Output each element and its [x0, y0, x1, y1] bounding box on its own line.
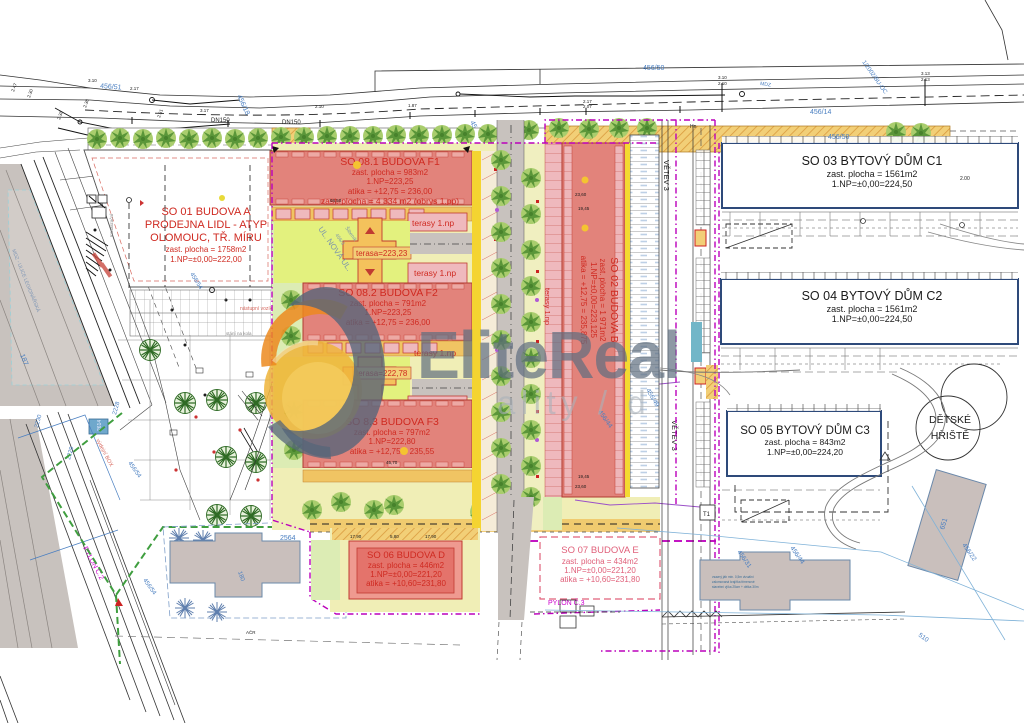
svg-text:stavební vjíka 25cm + délka 30: stavební vjíka 25cm + délka 30m	[712, 585, 759, 589]
svg-text:zast. plocha = 434m2: zast. plocha = 434m2	[562, 557, 639, 566]
svg-text:1.NP=±0,00=222,00: 1.NP=±0,00=222,00	[170, 255, 242, 264]
svg-text:SO 07 BUDOVA E: SO 07 BUDOVA E	[561, 545, 638, 556]
svg-text:19,45: 19,45	[578, 474, 590, 479]
svg-text:2.07: 2.07	[583, 104, 592, 109]
svg-text:OLOMOUC, TŘ. MÍRU: OLOMOUC, TŘ. MÍRU	[150, 231, 262, 244]
svg-text:DN150: DN150	[211, 118, 230, 124]
svg-text:2.10: 2.10	[315, 104, 324, 109]
svg-text:atika = +12,75 = 235,55: atika = +12,75 = 235,55	[350, 447, 435, 456]
svg-text:SO 03 BYTOVÝ DŮM C1: SO 03 BYTOVÝ DŮM C1	[802, 153, 943, 168]
svg-text:DN150: DN150	[282, 120, 301, 126]
svg-text:AČR: AČR	[246, 629, 256, 635]
svg-text:PYLON Č.3: PYLON Č.3	[548, 598, 585, 607]
svg-text:19,45: 19,45	[578, 206, 590, 211]
svg-text:2.13: 2.13	[921, 77, 930, 82]
svg-text:vsazný jáb min. 0,5m vizuální: vsazný jáb min. 0,5m vizuální	[712, 575, 754, 579]
svg-text:zast. plocha = 983m2: zast. plocha = 983m2	[352, 168, 429, 177]
svg-text:456/51: 456/51	[100, 83, 122, 91]
svg-text:1.NP=±0,00=224,50: 1.NP=±0,00=224,50	[832, 314, 913, 324]
svg-text:zast. plocha = 1561m2: zast. plocha = 1561m2	[827, 304, 918, 314]
svg-text:3.10: 3.10	[718, 75, 727, 80]
svg-text:atika = +10,60=231,80: atika = +10,60=231,80	[560, 575, 640, 584]
svg-text:VĚTEV 3: VĚTEV 3	[662, 160, 671, 191]
svg-text:zast. plocha = 843m2: zast. plocha = 843m2	[764, 437, 845, 447]
svg-text:terasy 1.np: terasy 1.np	[414, 268, 456, 278]
svg-text:1.87: 1.87	[408, 103, 417, 108]
svg-text:5,80: 5,80	[390, 534, 399, 539]
svg-text:PRODEJNA LIDL - ATYP: PRODEJNA LIDL - ATYP	[145, 219, 267, 231]
svg-text:SO 01 BUDOVA A: SO 01 BUDOVA A	[161, 206, 251, 218]
svg-text:VĚTEV 3: VĚTEV 3	[670, 420, 679, 451]
svg-text:ality / d: ality / d	[497, 384, 651, 421]
svg-text:23,60: 23,60	[575, 192, 587, 197]
svg-text:zast. plocha = 1561m2: zast. plocha = 1561m2	[827, 169, 918, 179]
svg-text:atika = +12,75 = 236,00: atika = +12,75 = 236,00	[348, 187, 433, 196]
svg-text:SO 05 BYTOVÝ DŮM C3: SO 05 BYTOVÝ DŮM C3	[740, 424, 870, 437]
svg-text:1.NP=±0,00=221,20: 1.NP=±0,00=221,20	[564, 566, 636, 575]
svg-text:1.NP=±0,00=224,20: 1.NP=±0,00=224,20	[767, 447, 843, 457]
svg-text:T1: T1	[703, 512, 711, 518]
svg-text:2.10: 2.10	[718, 81, 727, 86]
svg-text:23,60: 23,60	[575, 484, 587, 489]
svg-text:45,70: 45,70	[386, 460, 398, 465]
svg-text:3.13: 3.13	[921, 71, 930, 76]
svg-text:EliteReal: EliteReal	[417, 318, 680, 392]
svg-text:zast. plocha = 1758m2: zast. plocha = 1758m2	[166, 245, 247, 254]
svg-text:zast. plocha = 4 334 m2 (obrys: zast. plocha = 4 334 m2 (obrys 1.pp)	[321, 196, 459, 206]
svg-text:456/50: 456/50	[643, 65, 665, 72]
svg-text:zalomovaná krajířka třmenové: zalomovaná krajířka třmenové	[712, 580, 755, 584]
svg-text:1.NP=223,25: 1.NP=223,25	[365, 308, 412, 317]
svg-text:2.17: 2.17	[130, 86, 139, 91]
svg-text:17,90: 17,90	[350, 534, 362, 539]
svg-text:56,50: 56,50	[330, 198, 342, 203]
svg-text:SO 06 BUDOVA D: SO 06 BUDOVA D	[367, 550, 445, 561]
svg-text:terasa=223,23: terasa=223,23	[356, 249, 408, 258]
svg-text:1.NP=±0,00=224,50: 1.NP=±0,00=224,50	[832, 179, 913, 189]
svg-text:1.NP=±0,00=221,20: 1.NP=±0,00=221,20	[370, 570, 442, 579]
svg-text:zast. plocha = 446m2: zast. plocha = 446m2	[368, 561, 445, 570]
svg-text:terasy 1.np: terasy 1.np	[412, 218, 454, 228]
svg-text:SO 04 BYTOVÝ DŮM C2: SO 04 BYTOVÝ DŮM C2	[802, 288, 943, 303]
svg-text:3.17: 3.17	[200, 108, 209, 113]
svg-text:atika = +10,60=231,80: atika = +10,60=231,80	[366, 579, 446, 588]
svg-text:456/14: 456/14	[810, 109, 832, 116]
svg-text:3.10: 3.10	[88, 78, 97, 83]
svg-text:Kanalizační: Kanalizační	[109, 213, 114, 237]
svg-text:17,90: 17,90	[425, 534, 437, 539]
svg-text:Hn: Hn	[690, 124, 697, 130]
svg-text:1.NP=222,80: 1.NP=222,80	[369, 437, 416, 446]
svg-text:1.NP=223,25: 1.NP=223,25	[367, 177, 414, 186]
svg-text:456/50: 456/50	[828, 134, 850, 141]
svg-text:2.00: 2.00	[960, 176, 970, 182]
